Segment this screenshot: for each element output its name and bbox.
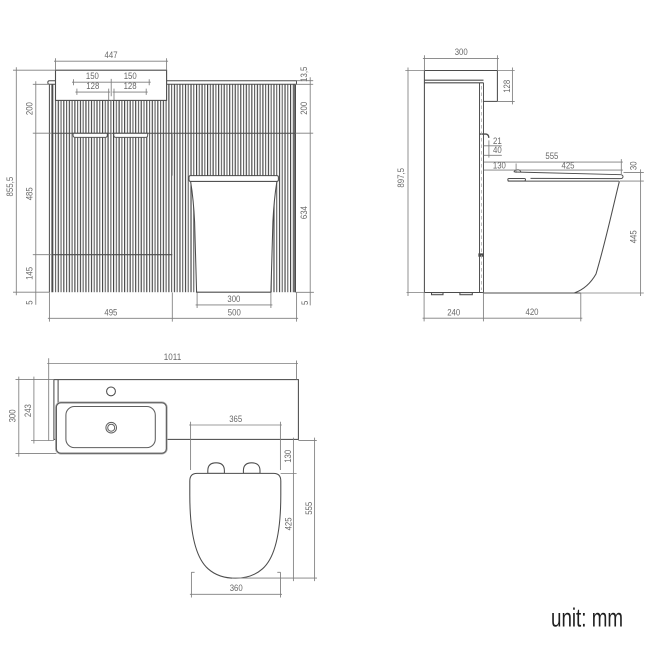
svg-text:365: 365: [229, 414, 242, 425]
svg-text:300: 300: [8, 409, 19, 422]
svg-text:200: 200: [299, 102, 310, 115]
svg-text:1011: 1011: [164, 352, 181, 363]
svg-text:420: 420: [526, 307, 539, 318]
svg-text:447: 447: [105, 50, 118, 61]
svg-text:130: 130: [493, 160, 506, 171]
svg-text:13,5: 13,5: [299, 67, 310, 82]
svg-text:300: 300: [455, 47, 468, 58]
svg-text:485: 485: [25, 187, 36, 200]
svg-text:555: 555: [304, 502, 315, 515]
svg-text:500: 500: [228, 308, 241, 319]
svg-text:897,5: 897,5: [396, 168, 407, 188]
svg-text:200: 200: [25, 102, 36, 115]
svg-text:128: 128: [124, 81, 137, 92]
svg-text:300: 300: [227, 294, 240, 305]
svg-text:5: 5: [25, 300, 36, 304]
svg-text:145: 145: [25, 267, 36, 280]
svg-text:5: 5: [300, 301, 311, 305]
svg-text:855,5: 855,5: [5, 177, 16, 197]
svg-text:unit: mm: unit: mm: [551, 603, 623, 633]
svg-text:40: 40: [493, 145, 502, 156]
svg-text:445: 445: [628, 230, 639, 243]
svg-text:555: 555: [545, 151, 558, 162]
svg-text:130: 130: [283, 450, 294, 463]
svg-text:425: 425: [562, 160, 575, 171]
svg-text:360: 360: [230, 583, 243, 594]
svg-text:495: 495: [104, 307, 117, 318]
svg-text:634: 634: [299, 206, 310, 220]
svg-text:243: 243: [23, 404, 34, 417]
svg-text:30: 30: [628, 161, 639, 170]
svg-text:128: 128: [502, 80, 513, 93]
svg-text:240: 240: [447, 307, 460, 318]
svg-text:128: 128: [86, 81, 99, 92]
svg-text:425: 425: [283, 517, 294, 530]
